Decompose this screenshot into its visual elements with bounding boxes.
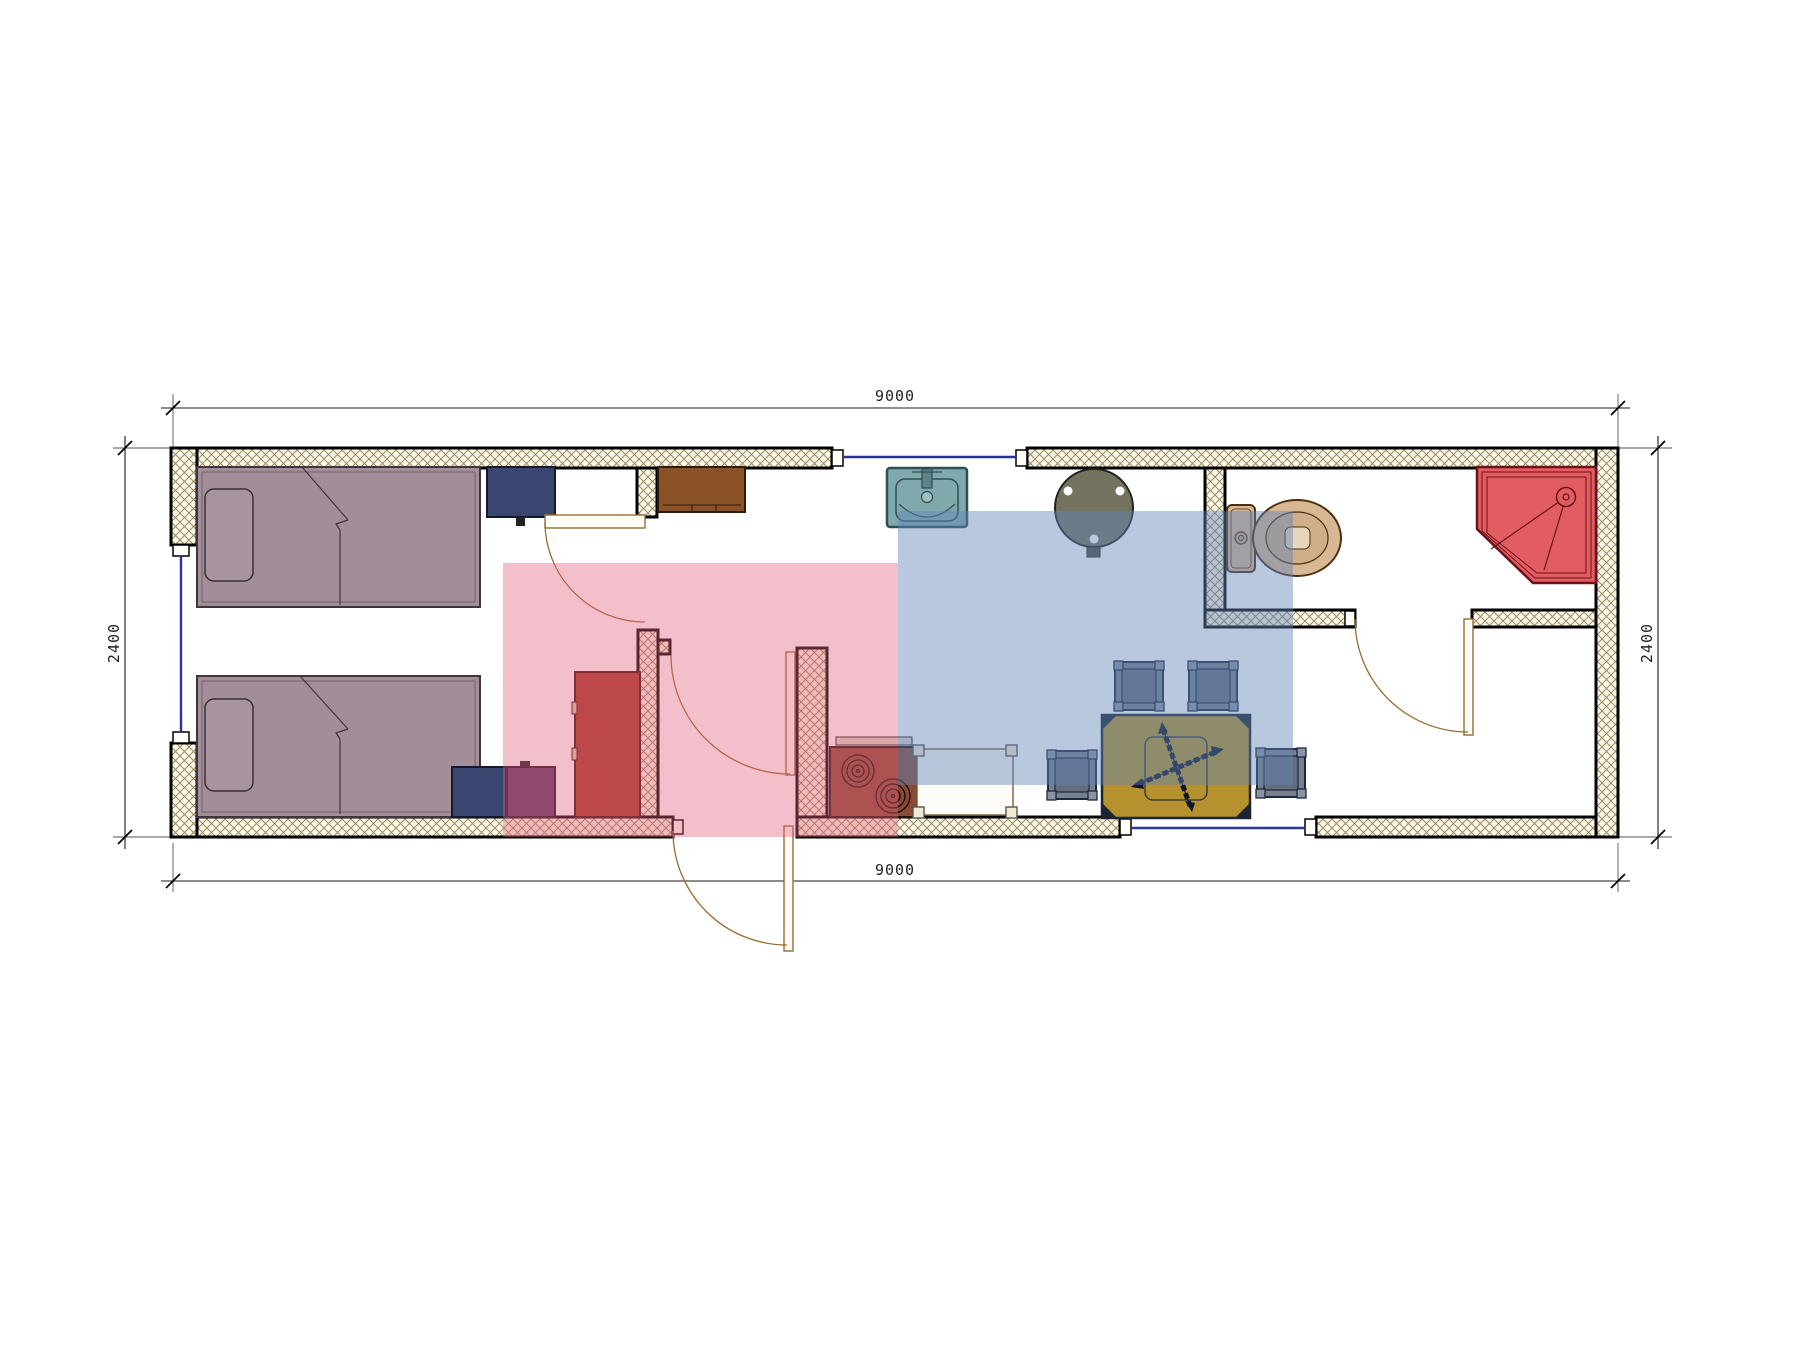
- nightstand-navy-top: [487, 467, 555, 517]
- watermark-pink-block: [503, 563, 898, 837]
- watermark-blue-block: [898, 511, 1293, 785]
- pillow: [205, 489, 253, 581]
- door-leaf: [1464, 619, 1473, 735]
- dim-height-right: 2400: [1638, 623, 1656, 663]
- window-jamb: [1305, 819, 1316, 835]
- window-jamb: [173, 732, 189, 743]
- single-bed-top: [197, 467, 480, 607]
- window-jamb: [1016, 450, 1027, 466]
- dim-width-bottom: 9000: [875, 861, 915, 879]
- entry-door-leaf: [784, 826, 793, 951]
- cabinet-brown: [658, 467, 745, 512]
- nightstand-navy-bottom: [452, 767, 506, 817]
- door-jamb: [1345, 611, 1355, 626]
- corner-shower: [1477, 467, 1596, 583]
- wall-stub-bedroom-door: [637, 468, 657, 517]
- wall-bathroom-bottom-right: [1472, 610, 1596, 627]
- door-stop: [516, 517, 525, 526]
- floor-plan-canvas: VANDA 9000 9000 2400 2400: [0, 0, 1800, 1350]
- pillow: [205, 699, 253, 791]
- wall-left-upper: [171, 448, 197, 545]
- dim-width-top: 9000: [875, 387, 915, 405]
- wall-bottom-right: [1316, 817, 1618, 837]
- wall-top-left: [171, 448, 832, 468]
- door-leaf: [545, 515, 645, 528]
- single-bed-bottom: [197, 676, 480, 817]
- dim-height-left: 2400: [105, 623, 123, 663]
- floor-plan-page: VANDA 9000 9000 2400 2400: [0, 0, 1800, 1350]
- shower-drain-icon: [1557, 488, 1576, 507]
- wall-top-right: [1027, 448, 1618, 468]
- window-jamb: [832, 450, 843, 466]
- door-swing-arc: [1355, 619, 1468, 732]
- bathroom-door: [1345, 611, 1473, 735]
- window-jamb: [1120, 819, 1131, 835]
- entry-door-swing-arc: [673, 831, 787, 945]
- wall-right: [1596, 448, 1618, 837]
- window-jamb: [173, 545, 189, 556]
- wall-left-lower: [171, 743, 197, 837]
